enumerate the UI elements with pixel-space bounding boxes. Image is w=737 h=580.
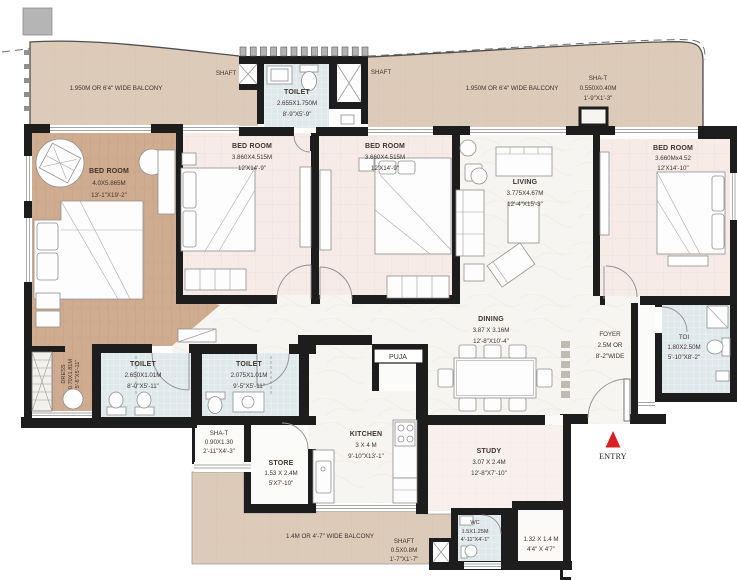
svg-text:SHAFT: SHAFT [371, 69, 392, 76]
svg-text:8'-0"X5'-11": 8'-0"X5'-11" [127, 383, 159, 390]
svg-text:0.70X1.81M: 0.70X1.81M [68, 359, 74, 390]
svg-text:DRESS: DRESS [61, 364, 67, 384]
svg-text:2.655X1.750M: 2.655X1.750M [277, 100, 317, 107]
svg-text:8'-2"WIDE: 8'-2"WIDE [596, 353, 624, 360]
svg-text:1'-7"X1'-7": 1'-7"X1'-7" [390, 556, 419, 563]
svg-text:12'X14'-9": 12'X14'-9" [238, 165, 266, 172]
svg-text:BED ROOM: BED ROOM [365, 143, 405, 150]
svg-text:STUDY: STUDY [477, 448, 502, 455]
svg-text:3.660Mx4.52: 3.660Mx4.52 [655, 155, 691, 162]
svg-text:5'-10"X8'-2": 5'-10"X8'-2" [668, 354, 700, 361]
svg-text:4'4" X 4'7": 4'4" X 4'7" [527, 546, 555, 553]
svg-text:TOILET: TOILET [284, 89, 310, 96]
svg-text:2.5M OR: 2.5M OR [598, 342, 623, 349]
svg-text:BED ROOM: BED ROOM [232, 143, 272, 150]
svg-text:0.5X0.8M: 0.5X0.8M [391, 547, 417, 554]
svg-text:0.90X1.30: 0.90X1.30 [205, 439, 234, 446]
svg-text:4.0X5.865M: 4.0X5.865M [92, 180, 125, 187]
svg-text:9'-10"X13'-1": 9'-10"X13'-1" [348, 453, 384, 460]
svg-text:SHA-T: SHA-T [589, 75, 608, 82]
svg-text:3.775X4.67M: 3.775X4.67M [507, 190, 544, 197]
svg-text:1.950M OR 6'4" WIDE BALCONY: 1.950M OR 6'4" WIDE BALCONY [70, 85, 163, 92]
svg-text:8'-9"X5'-9": 8'-9"X5'-9" [283, 111, 312, 118]
svg-text:3.660X4.515M: 3.660X4.515M [365, 154, 405, 161]
svg-text:TOILET: TOILET [236, 361, 262, 368]
svg-text:12'-8"X7'-10": 12'-8"X7'-10" [471, 470, 507, 477]
svg-text:12'-4"X15'-3": 12'-4"X15'-3" [507, 201, 543, 208]
svg-text:9'-5"X5'-11": 9'-5"X5'-11" [233, 383, 265, 390]
svg-text:1.53 X 2.4M: 1.53 X 2.4M [264, 470, 297, 477]
svg-text:1.5X1.25M: 1.5X1.25M [461, 529, 488, 535]
svg-text:SHA-T: SHA-T [210, 430, 229, 437]
svg-text:3 X 4 M: 3 X 4 M [355, 442, 376, 449]
svg-text:DINING: DINING [478, 316, 504, 323]
svg-text:13'-1"X19'-2": 13'-1"X19'-2" [91, 192, 127, 199]
svg-text:2.075X1.01M: 2.075X1.01M [231, 372, 268, 379]
svg-text:1'-9"X1'-3": 1'-9"X1'-3" [584, 95, 613, 102]
svg-text:WC: WC [470, 520, 479, 526]
svg-text:2'-11"X4'-3": 2'-11"X4'-3" [203, 448, 235, 455]
svg-text:3.07 X 2.4M: 3.07 X 2.4M [472, 459, 505, 466]
svg-text:LIVING: LIVING [513, 179, 538, 186]
svg-text:ENTRY: ENTRY [599, 452, 627, 461]
svg-text:SHAFT: SHAFT [216, 70, 237, 77]
svg-text:12'X14'-10": 12'X14'-10" [657, 165, 688, 172]
svg-text:12'-8"X10'-4": 12'-8"X10'-4" [473, 338, 509, 345]
svg-text:5'-6"X5'-11": 5'-6"X5'-11" [75, 360, 81, 389]
svg-text:1.80X2.50M: 1.80X2.50M [667, 344, 700, 351]
svg-text:SHAFT: SHAFT [394, 538, 415, 545]
svg-text:3.87 X 3.16M: 3.87 X 3.16M [473, 327, 510, 334]
svg-text:12'X14'-9": 12'X14'-9" [371, 165, 399, 172]
svg-text:2.650X1.01M: 2.650X1.01M [125, 372, 162, 379]
svg-text:BED ROOM: BED ROOM [653, 145, 693, 152]
svg-text:5'X7'-10": 5'X7'-10" [269, 480, 294, 487]
svg-text:TOILET: TOILET [130, 361, 156, 368]
svg-text:PUJA: PUJA [389, 354, 407, 361]
svg-text:1.950M OR 6'4" WIDE BALCONY: 1.950M OR 6'4" WIDE BALCONY [466, 85, 559, 92]
svg-text:1.32 X 1.4 M: 1.32 X 1.4 M [523, 536, 558, 543]
svg-text:BED ROOM: BED ROOM [89, 168, 129, 175]
svg-text:3.860X4.515M: 3.860X4.515M [232, 154, 272, 161]
svg-text:STORE: STORE [269, 460, 294, 467]
svg-text:TOI: TOI [679, 334, 689, 341]
svg-text:4'-11"X4'-1": 4'-11"X4'-1" [461, 537, 490, 543]
svg-text:KITCHEN: KITCHEN [350, 431, 383, 438]
svg-text:0.550X0.40M: 0.550X0.40M [580, 85, 617, 92]
svg-text:1.4M OR 4'-7" WIDE BALCONY: 1.4M OR 4'-7" WIDE BALCONY [286, 533, 374, 540]
svg-text:FOYER: FOYER [599, 331, 621, 338]
